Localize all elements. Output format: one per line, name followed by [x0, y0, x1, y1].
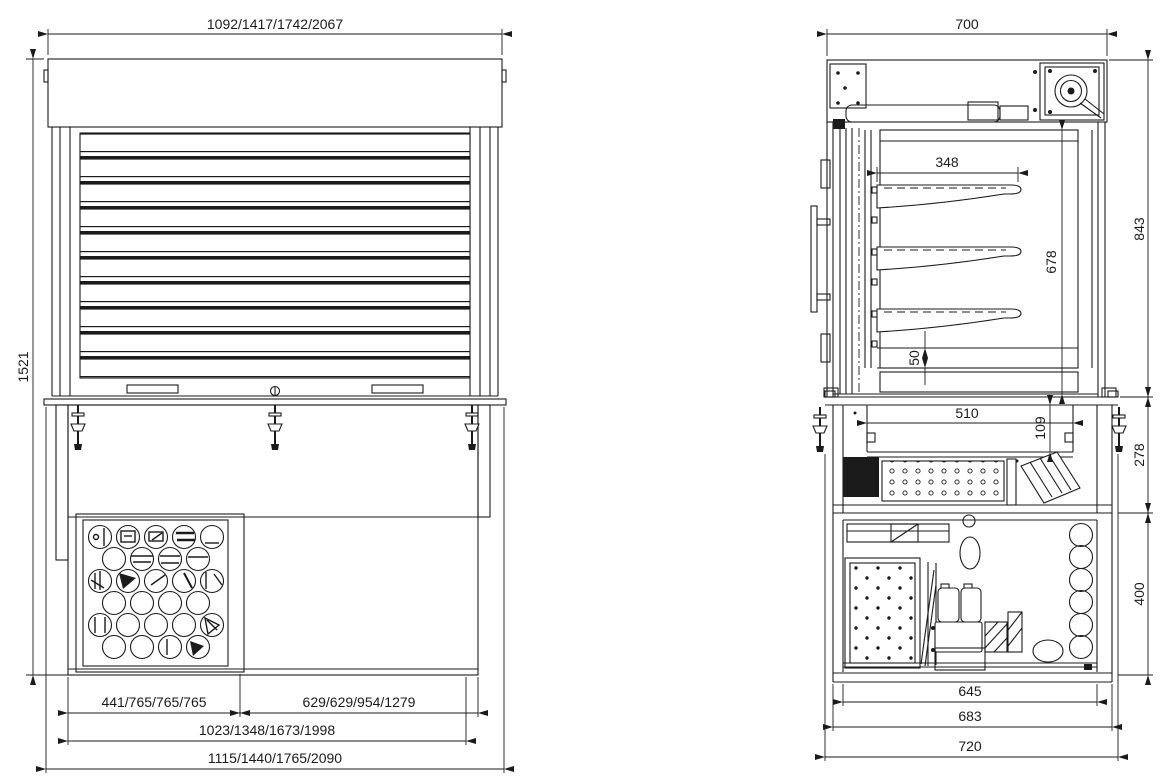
roller-shutter: [52, 127, 498, 396]
shelf: [877, 247, 1021, 270]
dim-base-mid-width: 683: [958, 708, 982, 724]
dim-front-width: 1092/1417/1742/2067: [207, 16, 343, 32]
insulation-section: [843, 457, 879, 497]
display-section: [811, 122, 1116, 397]
shelf: [877, 185, 1021, 208]
front-view: 1092/1417/1742/2067 1521 441/765/765/765…: [15, 16, 506, 773]
machine-compartment: [833, 513, 1112, 682]
dim-floor-gap: 50: [906, 350, 922, 366]
interior-floor: [824, 348, 1116, 397]
technical-drawing-page: 1092/1417/1742/2067 1521 441/765/765/765…: [0, 0, 1160, 778]
side-view: 700 348 678 50 843 510 109 278 400: [811, 16, 1153, 761]
shutter-slats: [80, 133, 470, 378]
clamp-icon: [465, 405, 479, 450]
door-hinge-icon: [821, 334, 830, 362]
shutter-handle-left: [127, 385, 178, 393]
dim-side-width: 700: [955, 16, 979, 32]
shelves: [877, 185, 1021, 332]
roller-belt: [1080, 103, 1101, 118]
clamp-icon: [71, 405, 85, 450]
fan-icon: [1016, 452, 1081, 503]
dim-base-height: 400: [1131, 582, 1147, 606]
drain-hole: [1033, 640, 1063, 662]
dim-front-height: 1521: [15, 351, 31, 382]
door-handle: [811, 206, 817, 312]
door-hinge-icon: [821, 160, 830, 188]
shelf-rail-ticks: [872, 187, 877, 347]
front-dimensions: 1092/1417/1742/2067 1521 441/765/765/765…: [15, 16, 504, 773]
shutter-housing-front: [44, 59, 506, 127]
shutter-housing-side: [827, 60, 1107, 129]
dim-base-inner-width: 645: [958, 683, 982, 699]
counter-top-front: [44, 399, 506, 405]
dim-front-vent-section: 441/765/765/765: [101, 694, 206, 710]
dim-shelf-depth: 348: [935, 154, 959, 170]
clamp-icon: [1112, 407, 1126, 452]
dim-front-inner-width: 1023/1348/1673/1998: [199, 722, 335, 738]
cable-holes: [1070, 524, 1093, 659]
condenser: [845, 558, 936, 668]
vent-grille: [76, 514, 244, 672]
dim-front-right-section: 629/629/954/1279: [303, 694, 416, 710]
clamp-icon: [813, 407, 827, 452]
dim-counter-height: 278: [1131, 443, 1147, 467]
glass-door-section: [811, 128, 871, 394]
dim-well-depth: 109: [1032, 416, 1048, 440]
evaporator-tray: [882, 461, 1004, 501]
shutter-handle-right: [372, 385, 423, 393]
dim-base-overall-width: 720: [958, 738, 982, 754]
shelf: [877, 309, 1021, 332]
vent-holes: [89, 526, 224, 659]
dim-well-width: 510: [955, 405, 979, 421]
air-duct: [846, 105, 1000, 122]
dim-interior-height: 678: [1043, 250, 1059, 274]
drawing-svg: 1092/1417/1742/2067 1521 441/765/765/765…: [0, 0, 1160, 778]
dim-front-overall-width: 1115/1440/1765/2090: [208, 750, 342, 766]
leveling-feet-front: [71, 405, 479, 450]
clamp-icon: [268, 405, 282, 450]
dim-upper-height: 843: [1131, 217, 1147, 241]
compressor: [931, 584, 985, 670]
mounting-bracket: [985, 612, 1022, 652]
base-cabinet-front: [33, 405, 490, 675]
